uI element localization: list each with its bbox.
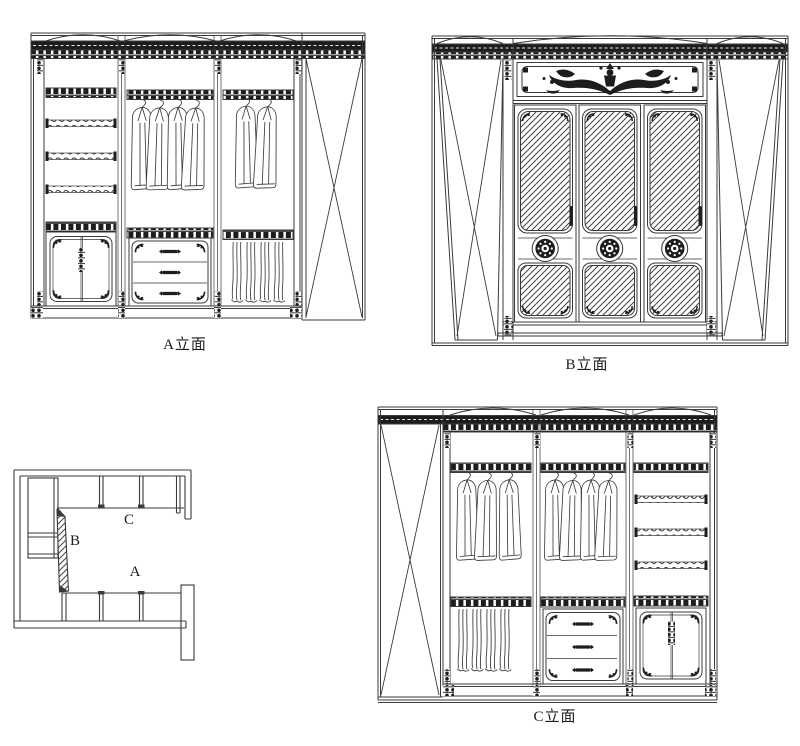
plan-zone-c-label: C: [120, 512, 138, 529]
carved-shelf: [635, 495, 708, 571]
door-handle: [570, 206, 573, 226]
elevation-a-label: A立面: [145, 333, 225, 354]
elevation-c-drawing: [378, 407, 717, 703]
two-door-cabinet: [46, 232, 116, 306]
shelf-column: [634, 463, 708, 684]
cross-brace-panel: [302, 33, 365, 320]
curtain-column: [223, 90, 293, 302]
plan-zone-a-label: A: [126, 564, 144, 581]
drawer-unit: [543, 609, 623, 684]
plan-wardrobe-b: [28, 478, 58, 558]
cross-brace-panel: [378, 407, 443, 700]
door-handle: [634, 206, 637, 226]
hanging-garments: [455, 472, 521, 561]
carved-crest: [543, 70, 611, 95]
hanging-column: [541, 463, 625, 684]
curtain: [457, 609, 511, 671]
elevation-a-drawing: [31, 33, 365, 320]
plan-end-panel: [181, 585, 194, 660]
drawing-sheet: A立面 B立面 C立面 C B A: [0, 0, 800, 746]
curtain: [231, 242, 285, 302]
carved-shelf: [46, 119, 117, 195]
floor-plan-drawing: [14, 470, 194, 660]
drawer-unit: [129, 238, 211, 306]
cross-brace-panel-left: [437, 59, 503, 340]
plan-wardrobe-c: [58, 476, 184, 513]
baseboard: [31, 306, 302, 318]
plan-zone-b-label: B: [66, 533, 84, 550]
crest-panel: [517, 63, 703, 97]
hanging-garments: [130, 99, 206, 190]
shelf-column: [46, 88, 117, 306]
crown-arch: [437, 36, 783, 44]
plinth: [498, 322, 722, 336]
curtain-column: [451, 463, 531, 671]
two-door-cabinet: [636, 608, 706, 684]
elevation-b-drawing: [432, 36, 788, 346]
carved-frieze-band: [31, 41, 365, 59]
elevation-b-label: B立面: [545, 353, 629, 374]
cross-brace-panel-right: [717, 59, 783, 340]
mirror-door-cabinet: [498, 39, 722, 341]
plan-wardrobe-a: [62, 585, 194, 660]
hanging-garments: [543, 472, 619, 561]
mirror-door: [515, 105, 577, 322]
hanging-garments: [234, 98, 278, 189]
door-handle: [699, 206, 702, 226]
carved-frieze-band: [432, 44, 788, 59]
carved-frieze-band: [378, 416, 717, 433]
hanging-column: [127, 90, 213, 306]
technical-drawing: [0, 0, 800, 746]
mirror-door: [644, 105, 706, 322]
elevation-c-label: C立面: [515, 705, 595, 726]
baseboard: [378, 684, 717, 703]
mirror-door: [579, 105, 641, 322]
